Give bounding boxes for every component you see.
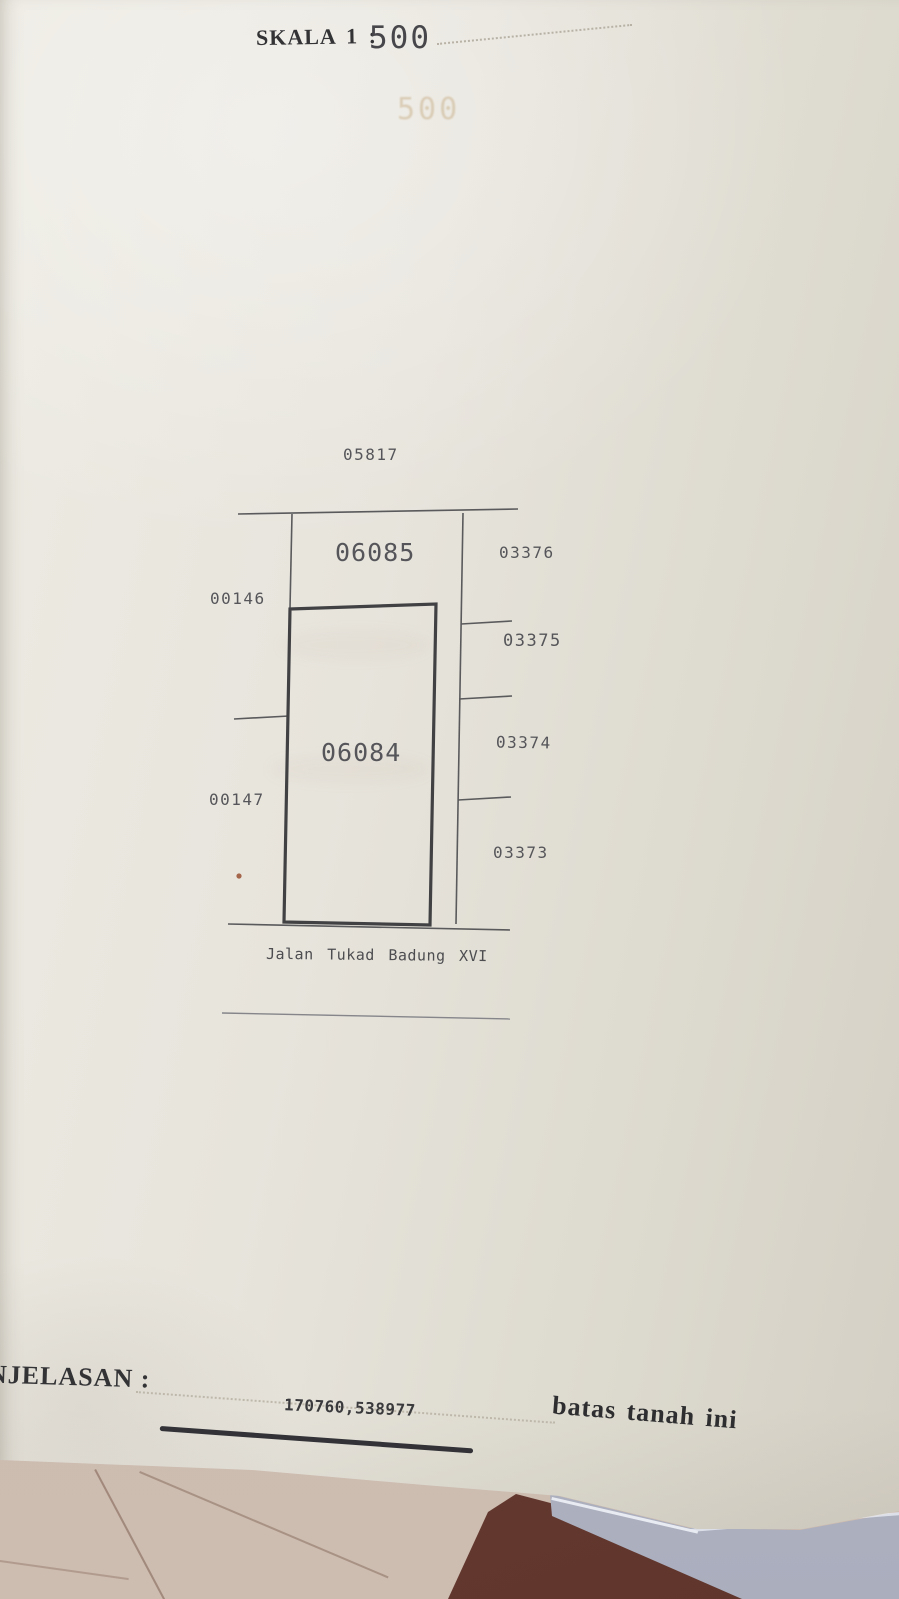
east-tick-2 bbox=[459, 696, 512, 699]
parcel-label-03375: 03375 bbox=[503, 633, 562, 650]
parcel-label-05817: 05817 bbox=[343, 447, 399, 463]
photo-scene: SKALA 1 : 500 500 05817 06085 03376 0014… bbox=[0, 0, 899, 1599]
survey-document-page: SKALA 1 : 500 500 05817 06085 03376 0014… bbox=[0, 0, 899, 1599]
upper-left-boundary-line bbox=[290, 514, 292, 608]
tile-grout-line bbox=[94, 1469, 171, 1599]
parcel-label-06085: 06085 bbox=[335, 540, 415, 565]
cadastral-diagram-lines bbox=[0, 0, 899, 1599]
street-name-label: Jalan Tukad Badung XVI bbox=[266, 947, 488, 964]
parcel-label-03373: 03373 bbox=[493, 845, 549, 861]
east-tick-3 bbox=[458, 797, 511, 800]
tile-grout-line bbox=[139, 1471, 388, 1578]
road-south-line bbox=[222, 1013, 510, 1019]
parcel-label-03374: 03374 bbox=[496, 735, 552, 752]
parcel-label-00147: 00147 bbox=[209, 792, 265, 808]
parcel-label-00146: 00146 bbox=[210, 591, 266, 607]
west-tick bbox=[234, 716, 289, 719]
tile-grout-line bbox=[0, 1560, 129, 1580]
parcel-label-06084: 06084 bbox=[321, 740, 401, 765]
explanation-label: NJELASAN : bbox=[0, 1359, 151, 1394]
north-boundary-line bbox=[238, 509, 518, 514]
red-survey-dot bbox=[236, 873, 241, 878]
east-boundary-line bbox=[456, 513, 463, 924]
parcel-label-03376: 03376 bbox=[499, 545, 555, 561]
east-tick-1 bbox=[461, 621, 512, 624]
